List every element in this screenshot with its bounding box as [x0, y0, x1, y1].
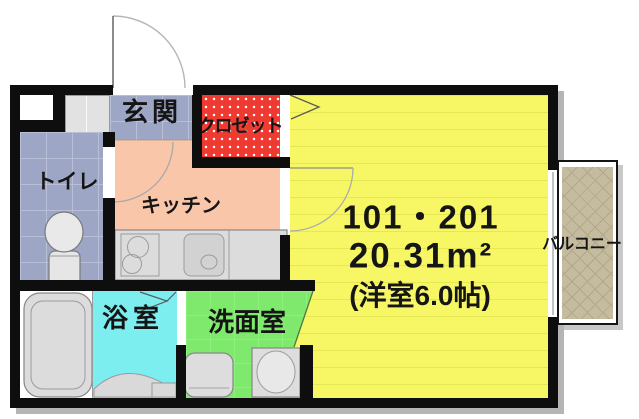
wall	[192, 157, 290, 168]
floorplan-canvas: 玄関 クロゼット トイレ キッチン 浴室 洗面室 バルコニー 101・201 2…	[0, 0, 639, 419]
wall	[176, 345, 186, 398]
label-room-size: (洋室6.0帖)	[349, 282, 491, 310]
wall	[103, 132, 115, 147]
label-kitchen: キッチン	[141, 196, 221, 216]
shoe-cabinet	[65, 95, 110, 133]
wall	[300, 345, 313, 398]
wall	[548, 85, 558, 170]
wall	[10, 120, 65, 132]
utility-box	[20, 95, 53, 120]
label-bathroom: 浴室	[102, 305, 164, 331]
wall	[10, 280, 315, 291]
shoe-cabinet-divider	[86, 96, 87, 132]
wall	[10, 85, 113, 95]
label-unit-area: 20.31m²	[349, 239, 493, 274]
room-toilet	[20, 132, 103, 280]
label-balcony: バルコニー	[542, 237, 622, 253]
entrance-door-swing	[113, 16, 185, 88]
label-unit-numbers: 101・201	[342, 201, 499, 234]
wall	[193, 85, 558, 95]
label-genkan: 玄関	[122, 99, 182, 125]
label-closet: クロゼット	[198, 117, 283, 135]
wall	[10, 85, 20, 408]
wall	[280, 235, 290, 281]
wall	[10, 398, 558, 408]
wall	[103, 198, 115, 281]
label-toilet: トイレ	[36, 172, 99, 193]
label-washroom: 洗面室	[208, 309, 286, 335]
wall	[548, 317, 558, 408]
